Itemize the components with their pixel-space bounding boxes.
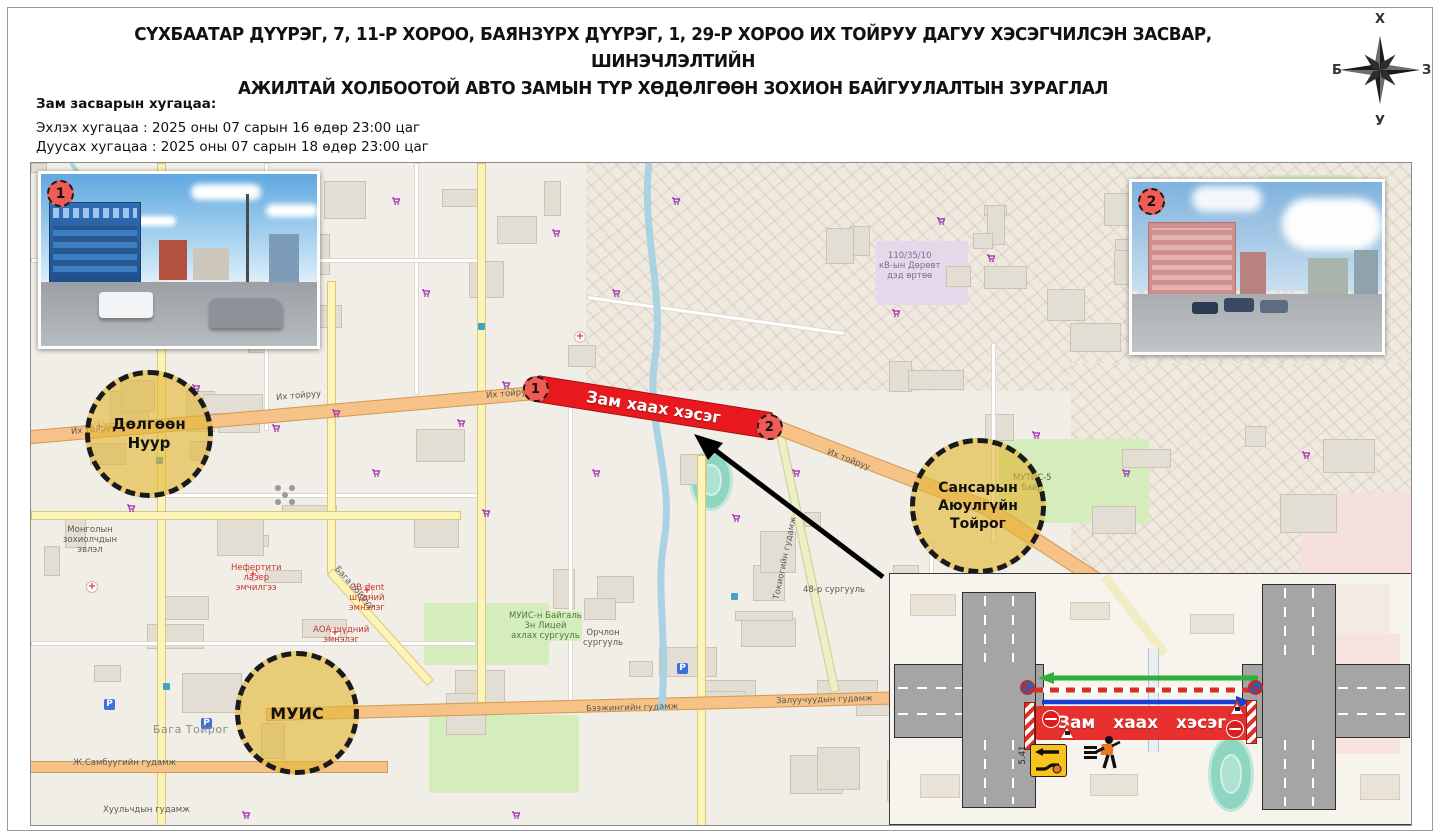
building — [659, 647, 717, 677]
road-label: Хуульчдын гудамж — [103, 805, 190, 815]
building — [416, 429, 465, 462]
shop-cart-icon — [1121, 463, 1131, 473]
title-line-1: СҮХБААТАР ДҮҮРЭГ, 7, 11-Р ХОРОО, БАЯНЗҮР… — [54, 22, 1292, 76]
building — [469, 261, 504, 298]
building — [159, 596, 209, 620]
schedule-heading: Зам засварын хугацаа: — [36, 96, 429, 112]
photo1-badge-number: 1 — [56, 186, 66, 202]
lane-marking — [984, 740, 986, 804]
street-photo-1: 1 — [38, 171, 320, 349]
lane-marking — [1338, 713, 1406, 715]
barrier-board-icon — [1246, 700, 1257, 744]
monument-icon — [289, 499, 295, 505]
shop-cart-icon — [501, 375, 511, 385]
shop-cart-icon — [371, 463, 381, 473]
zone-dolgoon-nuur: Дөлгөөн Нуур — [85, 370, 213, 498]
zone-muis: МУИС — [235, 651, 359, 775]
photo2-building-windows — [1152, 228, 1232, 290]
detour-sign-code: 5.41 — [1018, 740, 1028, 770]
compass-west-label: Б — [1332, 63, 1342, 78]
photo2-car — [1192, 302, 1218, 314]
detour-sign-icon — [1030, 744, 1067, 777]
compass-rose-icon — [1332, 12, 1428, 128]
building — [984, 266, 1027, 289]
shop-cart-icon — [671, 191, 681, 201]
shop-cart-icon — [421, 283, 431, 293]
compass-south-label: У — [1375, 114, 1385, 129]
hospital-icon: + — [574, 331, 586, 343]
building — [1070, 323, 1121, 352]
lane-marking — [898, 713, 962, 715]
building — [1245, 426, 1266, 447]
closure-marker-1-number: 1 — [531, 381, 540, 396]
shop-cart-icon — [986, 248, 996, 258]
photo1-building-windows — [53, 208, 137, 218]
poi-label: Нефертити лазер эмчилгээ — [231, 563, 281, 593]
inset-building — [1070, 602, 1110, 620]
building — [584, 598, 616, 620]
shop-cart-icon — [126, 498, 136, 508]
bus-stop-icon — [163, 683, 170, 690]
building — [497, 216, 537, 244]
lane-marking — [898, 687, 962, 689]
road-tertiary — [327, 281, 336, 573]
shop-cart-icon — [481, 503, 491, 513]
road-tertiary — [697, 455, 706, 826]
shop-cart-icon — [1031, 425, 1041, 435]
lane-marking — [1012, 596, 1014, 662]
photo1-badge: 1 — [47, 180, 74, 207]
shop-cart-icon — [791, 463, 801, 473]
poi-label: Монголын зохиолчдын эвлэл — [63, 525, 117, 555]
poi-label: Орчлон сургууль — [583, 628, 623, 648]
inset-building — [1360, 774, 1400, 800]
building — [324, 181, 366, 219]
roadwork-triangle-icon — [1228, 700, 1246, 716]
road-tertiary — [477, 163, 486, 713]
area-label: Бага Тойрог — [153, 725, 229, 735]
no-stopping-sign-icon — [1248, 680, 1263, 695]
photo2-building — [1308, 258, 1348, 294]
building — [1323, 439, 1375, 473]
photo2-building — [1240, 252, 1266, 298]
page-title: СҮХБААТАР ДҮҮРЭГ, 7, 11-Р ХОРОО, БАЯНЗҮР… — [28, 22, 1318, 103]
lane-marking — [1284, 740, 1286, 806]
road-label: Ж.Самбуугийн гудамж — [73, 758, 176, 768]
inset-closure-label: Зам хаах хэсэг — [1058, 713, 1226, 733]
building — [826, 228, 854, 264]
street — [151, 493, 481, 498]
photo1-building-windows — [53, 226, 137, 272]
shop-cart-icon — [591, 463, 601, 473]
photo2-road — [1132, 294, 1385, 355]
building — [908, 370, 964, 390]
shop-cart-icon — [511, 805, 521, 815]
roadworker-icon — [1082, 732, 1124, 772]
photo2-car — [1224, 298, 1254, 312]
street — [31, 641, 476, 646]
photo1-pole — [246, 194, 249, 286]
street — [414, 163, 419, 395]
shop-cart-icon — [936, 211, 946, 221]
monument-icon — [289, 485, 295, 491]
building — [182, 673, 242, 713]
poi-label: 48-р сургууль — [803, 585, 865, 595]
shop-cart-icon — [271, 418, 281, 428]
shop-cart-icon — [456, 413, 466, 423]
photo1-cloud — [191, 184, 261, 200]
parking-icon: P — [104, 699, 115, 710]
photo1-building — [269, 234, 299, 282]
photo2-car — [1260, 300, 1288, 313]
schedule-start: Эхлэх хугацаа : 2025 оны 07 сарын 16 өдө… — [36, 119, 429, 138]
inset-building — [1190, 614, 1234, 634]
closure-marker-2-number: 2 — [765, 420, 774, 435]
lane-marking — [1012, 740, 1014, 804]
photo2-cloud — [1282, 198, 1382, 250]
building — [1047, 289, 1085, 321]
monument-icon — [275, 485, 281, 491]
building — [804, 512, 821, 527]
shop-cart-icon — [241, 805, 251, 815]
shop-cart-icon — [731, 508, 741, 518]
building — [735, 611, 793, 621]
poi-label: 110/35/10 кВ-ын Дөрөвт дэд өртөө — [879, 251, 940, 281]
schedule-end: Дуусах хугацаа : 2025 оны 07 сарын 18 өд… — [36, 138, 429, 157]
lane-marking — [1312, 740, 1314, 806]
shop-cart-icon — [891, 303, 901, 313]
photo1-truck — [99, 292, 153, 318]
building — [44, 546, 60, 576]
lane-marking — [1284, 588, 1286, 660]
hospital-icon: + — [86, 581, 98, 593]
no-stopping-sign-icon — [1020, 680, 1035, 695]
building — [946, 266, 971, 287]
monument-icon — [275, 499, 281, 505]
lane-marking — [1312, 588, 1314, 660]
building — [544, 181, 561, 216]
shop-cart-icon — [1301, 445, 1311, 455]
inset-building — [1090, 774, 1138, 796]
street-photo-2: 2 — [1129, 179, 1385, 355]
building — [817, 747, 860, 790]
photo2-badge-number: 2 — [1147, 194, 1157, 210]
shop-cart-icon — [551, 223, 561, 233]
no-entry-sign-icon — [1226, 720, 1244, 738]
schedule-block: Зам засварын хугацаа: Эхлэх хугацаа : 20… — [36, 96, 429, 157]
lane-marking — [1338, 687, 1406, 689]
closure-banner-label: Зам хаах хэсэг — [585, 387, 722, 427]
poi-label: GB dent шүдний эмнэлэг — [349, 583, 385, 613]
building — [985, 414, 1014, 441]
inset-stadium — [1208, 736, 1254, 812]
compass-rose: Х У З Б — [1332, 12, 1428, 128]
poi-label: АОА шүдний эмнэлэг — [313, 625, 369, 645]
photo2-building — [1354, 250, 1378, 294]
building — [973, 233, 993, 249]
building — [629, 661, 653, 677]
inset-road — [1101, 574, 1168, 657]
building — [1280, 494, 1337, 533]
road-label: Бээжингийн гудамж — [586, 702, 679, 714]
building — [741, 618, 796, 647]
shop-cart-icon — [611, 283, 621, 293]
bus-stop-icon — [731, 593, 738, 600]
photo2-cloud — [1192, 186, 1262, 212]
street — [568, 403, 573, 711]
shop-cart-icon — [391, 191, 401, 201]
photo1-building — [193, 248, 229, 280]
photo1-cloud — [136, 216, 176, 226]
zone-sansar-roundabout: Сансарын Аюулгүйн Тойрог — [910, 438, 1046, 574]
compass-north-label: Х — [1375, 12, 1385, 27]
city-map: + + + + + + P P P Их тойруу Их тойруу Их… — [30, 162, 1412, 826]
roadwork-triangle-icon — [1058, 724, 1076, 740]
building — [568, 345, 596, 367]
parking-icon: P — [677, 663, 688, 674]
inset-junction-right — [1264, 666, 1335, 737]
inset-building — [920, 774, 960, 798]
poi-label: МУИС-н Байгаль 3н Лицей ахлах сургууль — [509, 611, 582, 641]
lane-marking — [984, 596, 986, 662]
road-label: Их тойруу — [276, 389, 322, 403]
inset-building — [910, 594, 956, 616]
road-tertiary — [31, 511, 461, 520]
monument-icon — [282, 492, 288, 498]
compass-east-label: З — [1422, 63, 1431, 78]
photo2-badge: 2 — [1138, 188, 1165, 215]
bus-stop-icon — [478, 323, 485, 330]
photo1-building — [159, 240, 187, 280]
road-closure-poster: СҮХБААТАР ДҮҮРЭГ, 7, 11-Р ХОРОО, БАЯНЗҮР… — [0, 0, 1440, 838]
closure-scheme-inset: Зам хаах хэсэг 5.41 — [889, 573, 1412, 825]
photo1-cloud — [266, 204, 318, 217]
shop-cart-icon — [331, 403, 341, 413]
photo1-car — [209, 298, 283, 328]
building — [442, 189, 480, 207]
building — [94, 665, 121, 682]
building — [1092, 506, 1136, 534]
